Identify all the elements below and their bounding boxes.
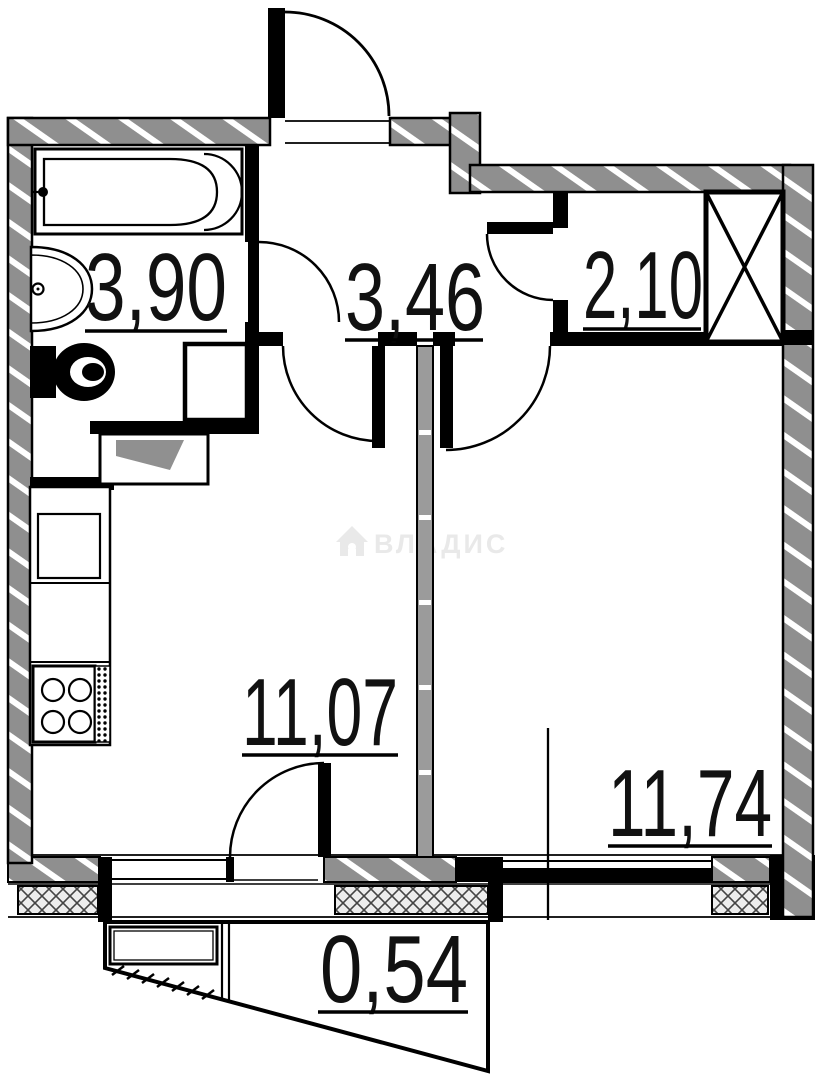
room-label-hallway: 3,46 xyxy=(345,244,485,351)
top-wall-right xyxy=(470,165,790,192)
svg-text:3,46: 3,46 xyxy=(345,244,485,351)
bathtub-icon xyxy=(32,149,242,234)
svg-text:2,10: 2,10 xyxy=(583,232,703,339)
room-label-living-kitchen: 11,07 xyxy=(242,659,398,766)
wall-junction xyxy=(783,330,813,345)
svg-text:11,07: 11,07 xyxy=(242,659,398,766)
right-wall xyxy=(783,165,813,917)
left-wall xyxy=(8,118,32,863)
room-label-closet: 2,10 xyxy=(583,232,703,339)
stove-icon xyxy=(33,666,110,742)
kitchen-sink-icon xyxy=(38,514,100,578)
watermark-text: ВЛАДИС xyxy=(374,529,508,559)
plumbing-niche xyxy=(100,434,208,484)
closet-wall-upper xyxy=(553,192,568,228)
bathroom-wall-upper xyxy=(245,145,259,242)
room-label-bathroom: 3,90 xyxy=(85,234,227,341)
svg-text:11,74: 11,74 xyxy=(608,750,772,857)
room-divider-wall xyxy=(417,346,433,857)
window-sill-hatch xyxy=(18,886,98,914)
toilet-icon xyxy=(30,343,115,401)
closet-wall-lower xyxy=(553,300,568,346)
ventilation-shaft-icon xyxy=(706,192,783,342)
top-wall-left xyxy=(8,118,270,145)
window-sill-hatch xyxy=(335,886,488,914)
kitchen-counter xyxy=(30,487,110,745)
floor-plan-canvas: ВЛАДИС xyxy=(0,0,823,1080)
floor-plan: ВЛАДИС xyxy=(0,0,823,1080)
balcony-box xyxy=(110,927,217,964)
washing-machine-icon xyxy=(185,344,247,420)
svg-text:0,54: 0,54 xyxy=(320,916,468,1023)
bathroom-bottom-wall xyxy=(90,421,250,434)
svg-text:3,90: 3,90 xyxy=(85,234,227,341)
window-sill-hatch xyxy=(712,886,768,914)
top-wall-mid xyxy=(390,118,455,145)
room-label-bedroom: 11,74 xyxy=(608,750,772,857)
room-label-balcony: 0,54 xyxy=(318,916,468,1023)
